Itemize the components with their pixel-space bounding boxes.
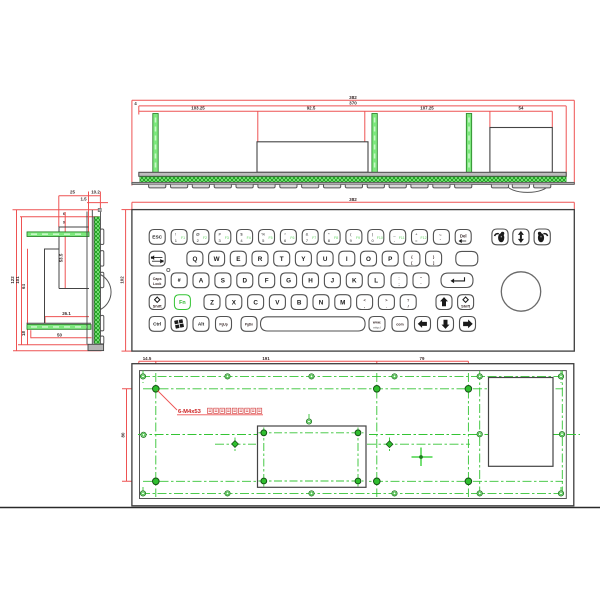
svg-text:N: N — [319, 299, 324, 306]
svg-text:10.2: 10.2 — [91, 190, 100, 195]
svg-text:54: 54 — [519, 106, 524, 111]
svg-text:M: M — [340, 299, 345, 306]
svg-text:92.5: 92.5 — [307, 106, 316, 111]
svg-text:F8: F8 — [334, 236, 338, 240]
svg-text:F7: F7 — [312, 236, 316, 240]
svg-text:ESC: ESC — [152, 235, 162, 241]
svg-text:F10: F10 — [377, 236, 383, 240]
svg-text::: : — [398, 276, 399, 281]
svg-text:K: K — [352, 278, 357, 285]
svg-text:191: 191 — [262, 356, 270, 361]
svg-text:F6: F6 — [290, 236, 294, 240]
svg-text:G: G — [286, 278, 291, 285]
svg-text:,: , — [364, 303, 365, 308]
svg-text:E: E — [236, 256, 240, 263]
svg-text:Alt: Alt — [198, 322, 205, 327]
svg-text:370: 370 — [349, 100, 357, 105]
svg-text:B: B — [297, 299, 302, 306]
svg-text:%: % — [262, 232, 266, 237]
svg-text:101: 101 — [15, 276, 20, 284]
svg-text:Lock: Lock — [153, 282, 161, 286]
svg-text:Q: Q — [192, 256, 197, 263]
svg-text:W: W — [214, 256, 220, 263]
svg-text:80: 80 — [120, 432, 125, 437]
svg-text:F12: F12 — [421, 236, 427, 240]
svg-text:79: 79 — [420, 356, 425, 361]
svg-text:Caps: Caps — [153, 277, 162, 281]
svg-text:^: ^ — [284, 232, 286, 237]
svg-text:F3: F3 — [225, 236, 229, 240]
svg-text:nttp:/: nttp:/ — [373, 325, 381, 329]
svg-text:F1: F1 — [181, 236, 185, 240]
svg-text:F11: F11 — [399, 236, 405, 240]
svg-text:1.5: 1.5 — [80, 197, 87, 202]
svg-text:R: R — [258, 256, 263, 263]
svg-text:6-M4x53: 6-M4x53 — [178, 409, 202, 415]
svg-text:S: S — [221, 278, 225, 285]
svg-text:PgUp: PgUp — [219, 323, 227, 327]
svg-text:26.1: 26.1 — [62, 311, 71, 316]
svg-text:102: 102 — [119, 276, 124, 284]
svg-text:Shift: Shift — [461, 303, 471, 308]
svg-text:107.25: 107.25 — [420, 106, 434, 111]
svg-text:I: I — [346, 256, 348, 263]
svg-text:382: 382 — [349, 197, 357, 202]
svg-text:com: com — [396, 323, 403, 327]
svg-text:&: & — [306, 232, 309, 237]
svg-text:U: U — [323, 256, 328, 263]
svg-text:64: 64 — [21, 284, 26, 289]
svg-text:Shift: Shift — [153, 303, 163, 308]
svg-text:PgDn: PgDn — [245, 323, 253, 327]
svg-text:A: A — [199, 278, 204, 285]
svg-text:Del: Del — [460, 234, 467, 239]
svg-text:#: # — [178, 278, 181, 284]
svg-text:C: C — [253, 299, 258, 306]
svg-text:Z: Z — [210, 299, 214, 306]
svg-text:;: ; — [398, 282, 399, 287]
svg-text:4: 4 — [134, 101, 137, 106]
svg-text:!: ! — [175, 232, 176, 237]
svg-text:F: F — [265, 278, 269, 285]
svg-text:14.5: 14.5 — [143, 356, 152, 361]
svg-text:F2: F2 — [203, 236, 207, 240]
svg-text:382: 382 — [349, 95, 357, 100]
svg-text:F9: F9 — [356, 236, 360, 240]
svg-text:": " — [420, 276, 422, 281]
svg-text:F4: F4 — [247, 236, 251, 240]
svg-text:Fn: Fn — [179, 300, 186, 306]
svg-text:18: 18 — [21, 331, 26, 336]
svg-text:O: O — [366, 256, 371, 263]
svg-text:@: @ — [196, 232, 200, 237]
svg-text:103.25: 103.25 — [191, 106, 205, 111]
svg-text:P: P — [388, 256, 392, 263]
svg-text:J: J — [331, 278, 335, 285]
svg-text:T: T — [280, 256, 284, 263]
svg-text:H: H — [308, 278, 313, 285]
svg-text:Ctrl: Ctrl — [153, 322, 161, 327]
svg-text:25: 25 — [70, 190, 75, 195]
svg-text:': ' — [421, 282, 422, 287]
svg-text:50: 50 — [57, 332, 62, 337]
svg-text:F5: F5 — [268, 236, 272, 240]
svg-text:L: L — [374, 278, 378, 285]
svg-text:www.: www. — [372, 321, 381, 325]
svg-text:.: . — [386, 303, 387, 308]
svg-text:D: D — [243, 278, 248, 285]
